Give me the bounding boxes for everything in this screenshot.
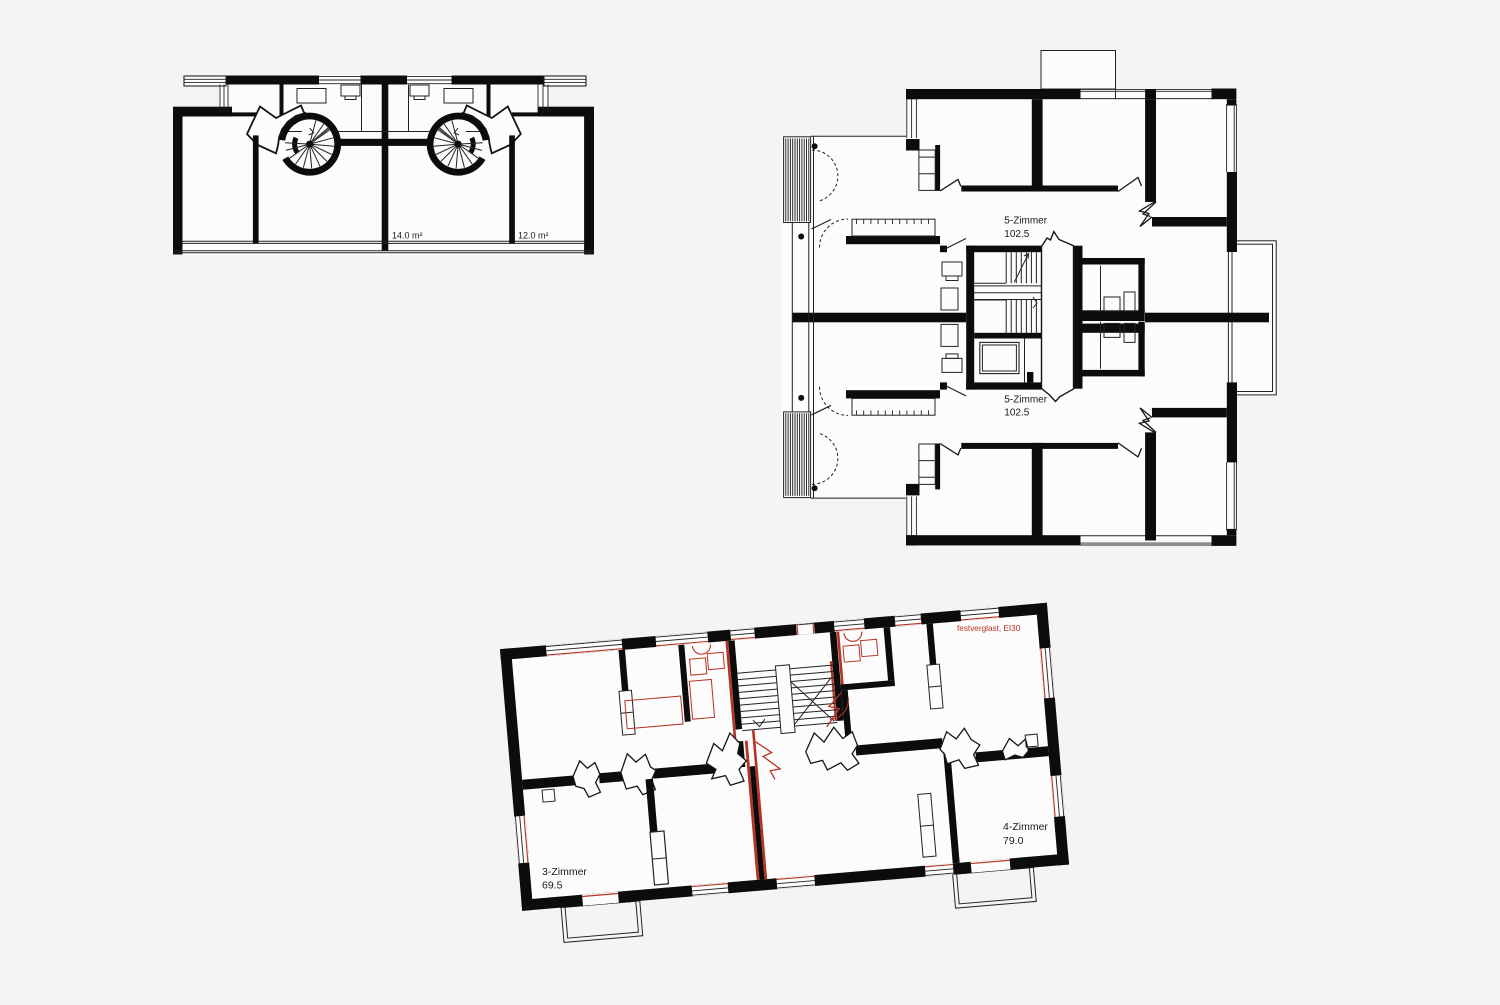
svg-text:14.0 m²: 14.0 m² xyxy=(392,231,423,241)
svg-text:12.0 m²: 12.0 m² xyxy=(518,231,549,241)
svg-text:festverglast, EI30: festverglast, EI30 xyxy=(957,624,1021,633)
svg-text:4-Zimmer: 4-Zimmer xyxy=(1003,821,1048,833)
svg-text:102.5: 102.5 xyxy=(1004,229,1029,240)
svg-text:69.5: 69.5 xyxy=(542,879,563,891)
svg-text:3-Zimmer: 3-Zimmer xyxy=(542,866,587,878)
svg-text:5-Zimmer: 5-Zimmer xyxy=(1004,395,1047,406)
svg-text:79.0: 79.0 xyxy=(1003,835,1024,847)
svg-text:102.5: 102.5 xyxy=(1004,408,1029,419)
svg-text:5-Zimmer: 5-Zimmer xyxy=(1004,215,1047,226)
